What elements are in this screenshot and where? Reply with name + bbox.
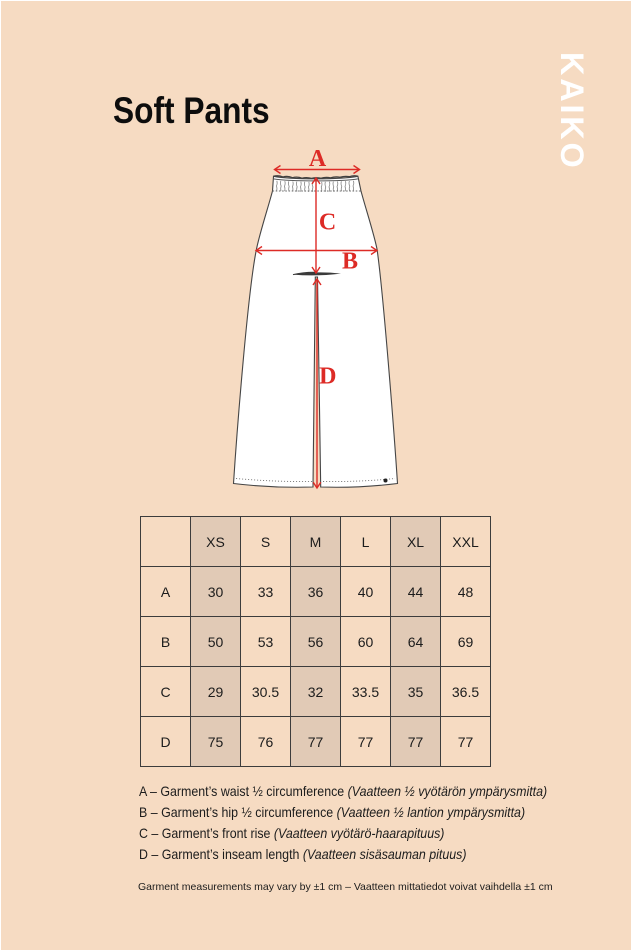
svg-text:B: B — [342, 249, 358, 275]
svg-text:A: A — [309, 146, 327, 172]
svg-text:D: D — [319, 364, 336, 390]
svg-text:C: C — [319, 210, 336, 236]
